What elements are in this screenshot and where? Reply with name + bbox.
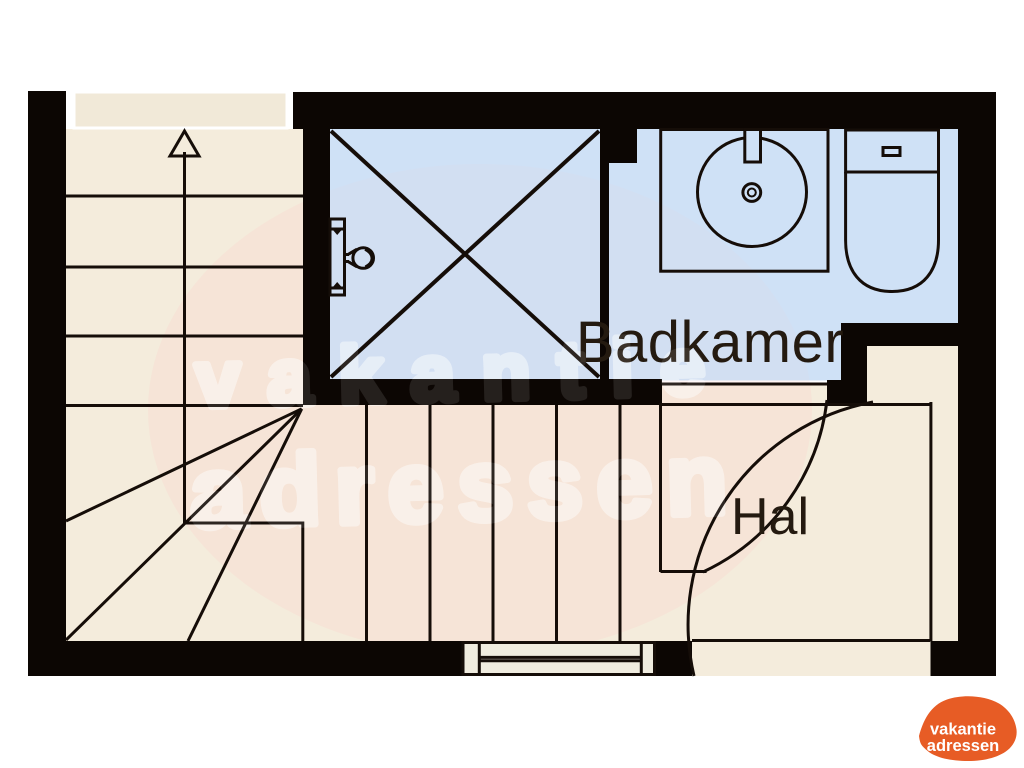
svg-text:adressen: adressen xyxy=(927,737,999,755)
svg-text:Hal: Hal xyxy=(731,488,809,546)
svg-text:vakantie: vakantie xyxy=(195,321,733,424)
svg-text:vakantie: vakantie xyxy=(930,721,996,739)
svg-text:adressen: adressen xyxy=(189,423,743,549)
